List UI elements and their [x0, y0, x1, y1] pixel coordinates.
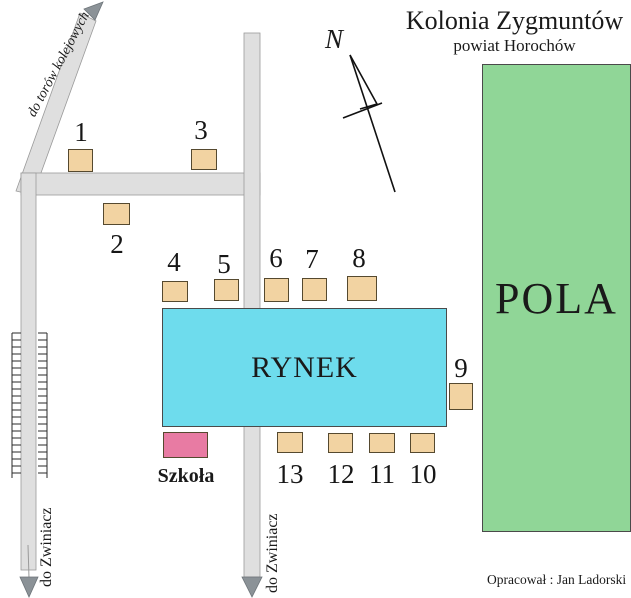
compass-north-label: N	[325, 24, 343, 55]
map-subtitle: powiat Horochów	[398, 36, 631, 56]
house-4	[162, 281, 188, 302]
road-horizontal	[21, 173, 260, 195]
house-label-1: 1	[61, 119, 101, 146]
map-title: Kolonia Zygmuntów	[398, 6, 631, 36]
road-west-arrow-icon	[20, 577, 38, 597]
fields-area: POLA	[482, 64, 631, 532]
south-road-label: do Zwiniacz	[264, 513, 281, 593]
title-block: Kolonia Zygmuntów powiat Horochów	[398, 6, 631, 56]
road-west	[21, 173, 36, 570]
house-label-2: 2	[97, 231, 137, 258]
house-label-5: 5	[204, 251, 244, 278]
school-building	[163, 432, 208, 458]
credit-text: Opracował : Jan Ladorski	[487, 572, 626, 588]
house-label-9: 9	[441, 355, 481, 382]
house-label-10: 10	[403, 461, 443, 488]
house-label-11: 11	[362, 461, 402, 488]
house-10	[410, 433, 435, 453]
settlement-map: Kolonia Zygmuntów powiat Horochów N POLA…	[0, 0, 631, 598]
house-label-7: 7	[292, 246, 332, 273]
house-5	[214, 279, 239, 301]
north-arrow-icon	[343, 55, 395, 192]
house-label-4: 4	[154, 249, 194, 276]
house-13	[277, 432, 303, 453]
house-label-8: 8	[339, 245, 379, 272]
house-9	[449, 383, 473, 410]
house-11	[369, 433, 395, 453]
house-7	[302, 278, 327, 301]
house-label-13: 13	[270, 461, 310, 488]
house-1	[68, 149, 93, 172]
road-middle-lower	[244, 425, 260, 577]
house-label-12: 12	[321, 461, 361, 488]
road-south-arrow-icon	[242, 577, 262, 597]
west-road-label: do Zwiniacz	[38, 507, 55, 587]
house-label-3: 3	[181, 117, 221, 144]
house-2	[103, 203, 130, 225]
house-12	[328, 433, 353, 453]
house-label-6: 6	[256, 245, 296, 272]
house-6	[264, 278, 289, 302]
house-8	[347, 276, 377, 301]
fields-label: POLA	[495, 273, 618, 324]
school-label: Szkoła	[141, 465, 231, 488]
market-label: RYNEK	[251, 351, 358, 385]
house-3	[191, 149, 217, 170]
market-square: RYNEK	[162, 308, 447, 427]
